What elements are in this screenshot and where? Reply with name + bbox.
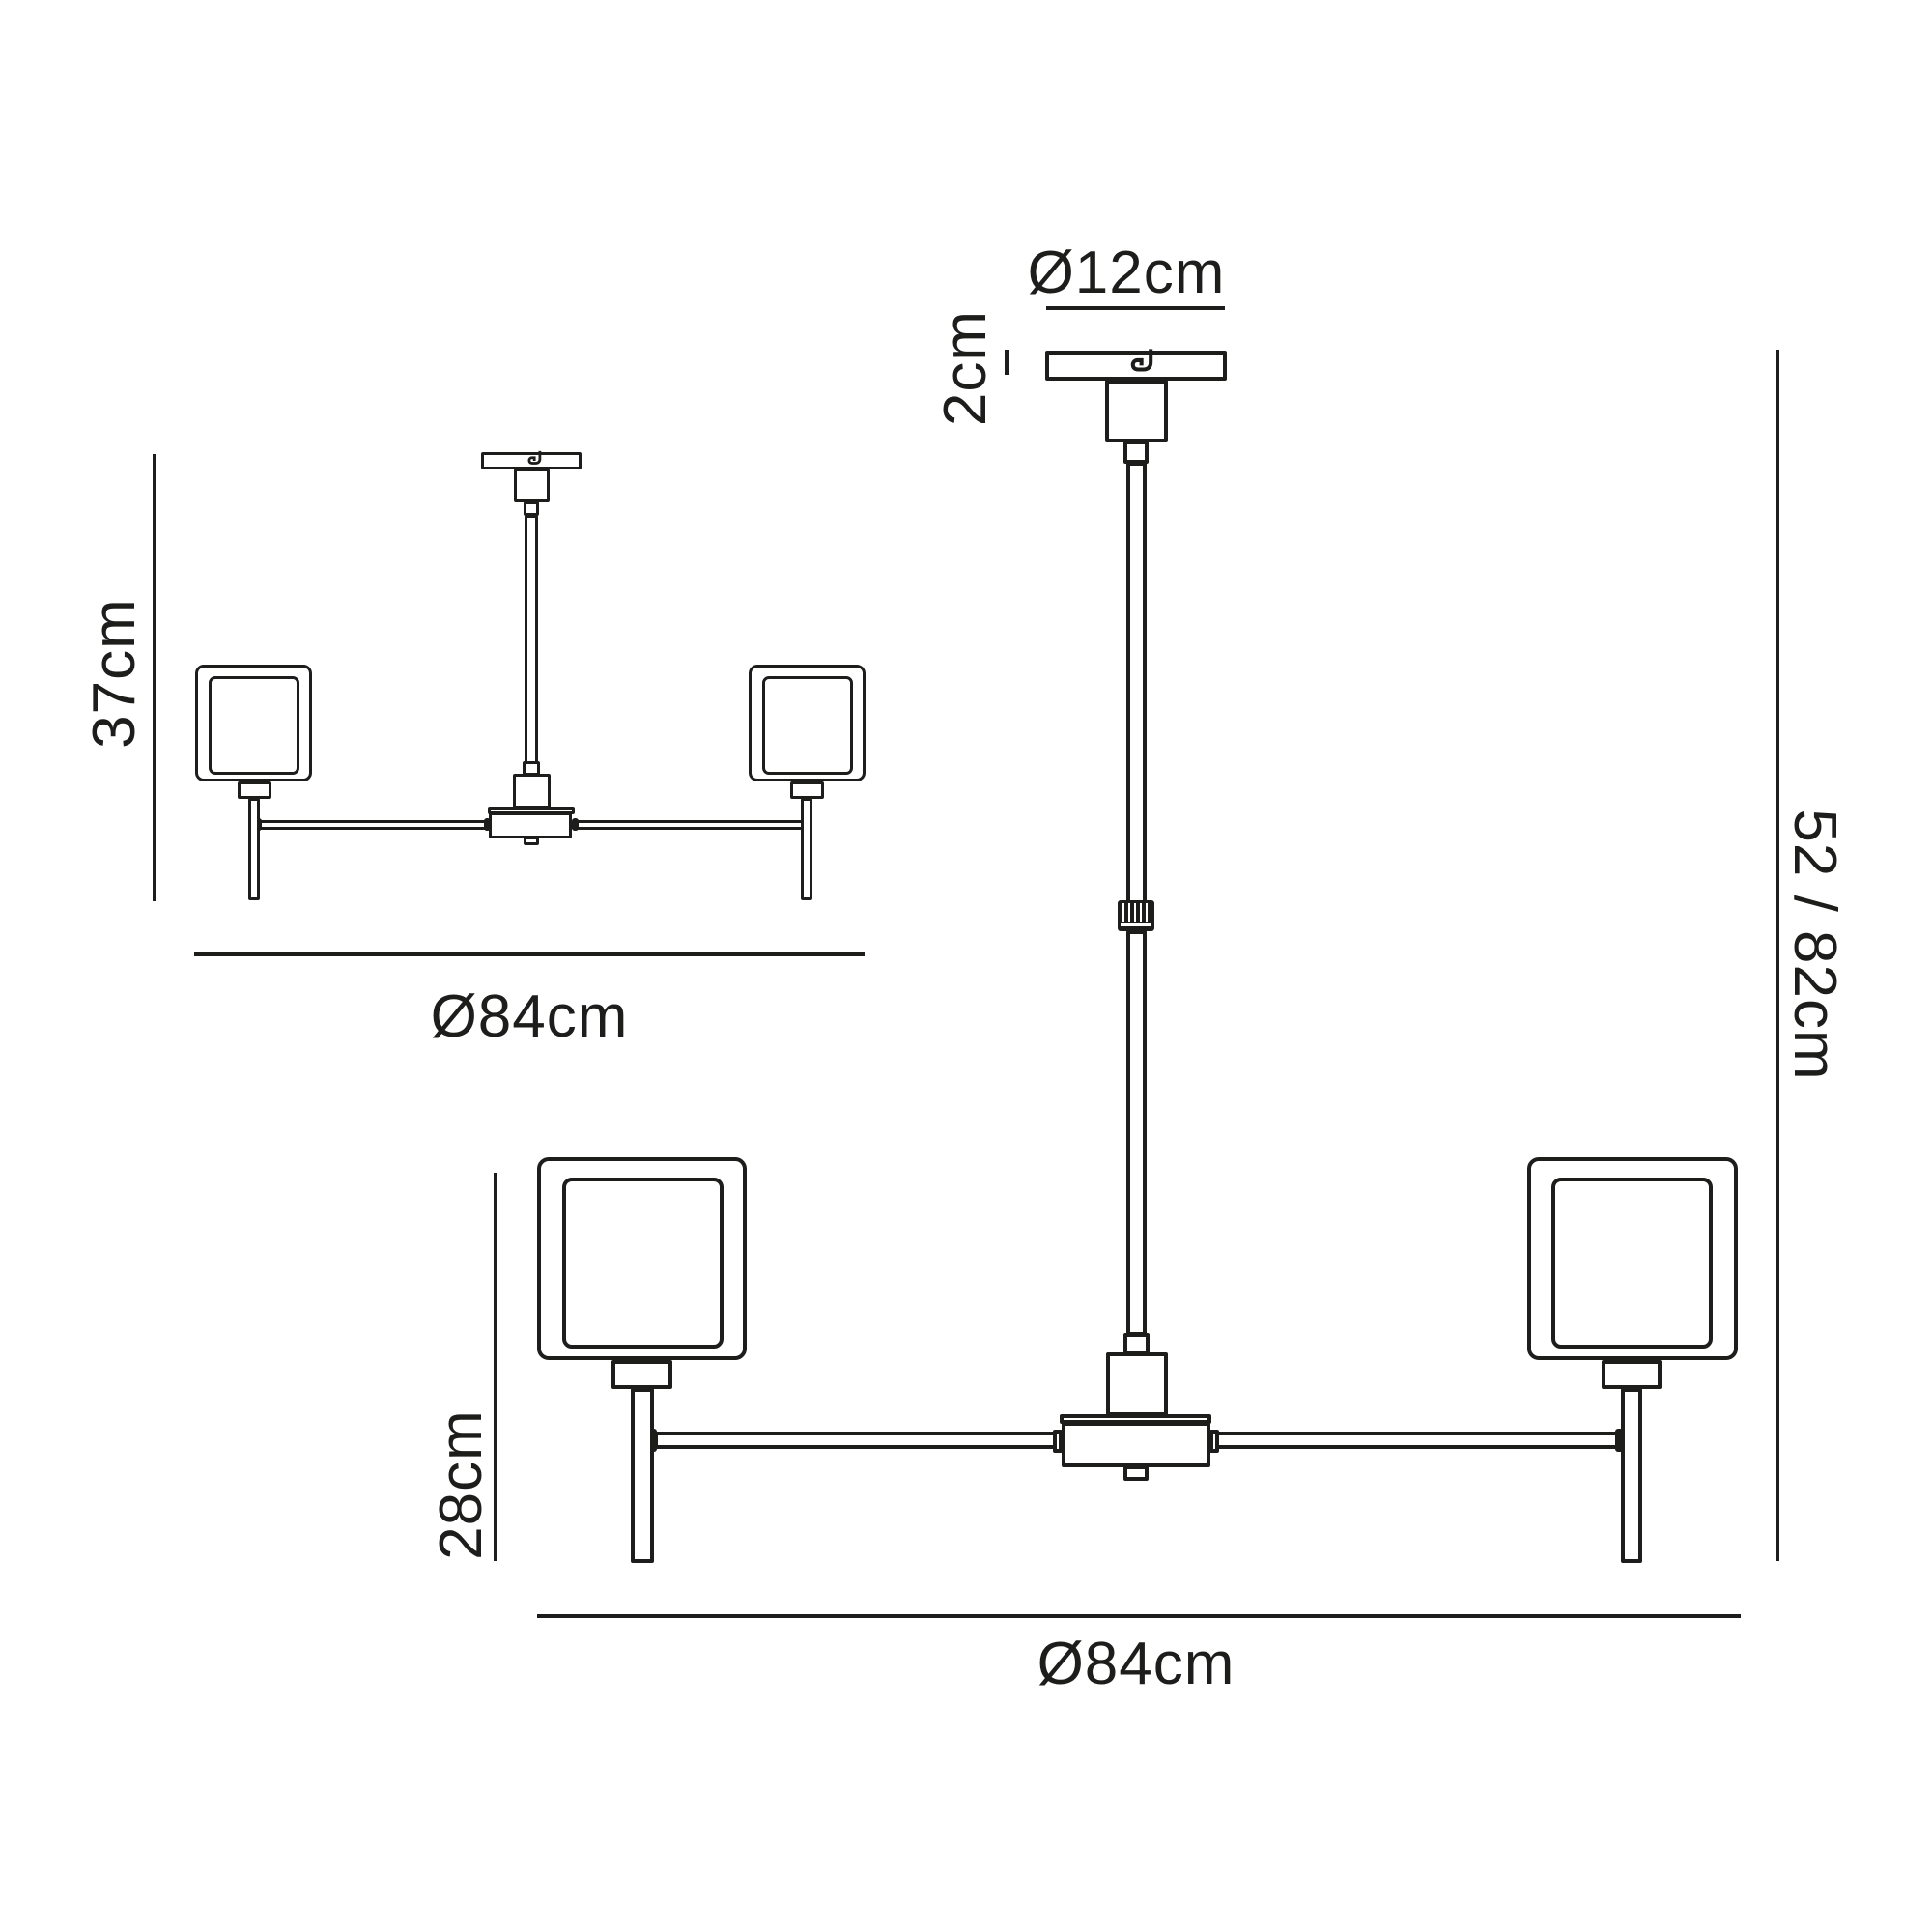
front-view-canopy-diameter-label: Ø12cm [981, 243, 1271, 303]
front-view-canopy-socket [1105, 380, 1168, 442]
front-view-lamp-holder-right [1602, 1360, 1662, 1389]
front-view-canopy-height-tick [1005, 350, 1009, 375]
front-view-drop-dimension-line [1776, 350, 1779, 1561]
height-adjuster-collar [1118, 900, 1154, 931]
side-view-hub-finial [524, 837, 539, 845]
front-view-diameter-dimension-line [537, 1614, 1741, 1618]
front-view-drop-rod-right [1621, 1388, 1642, 1563]
front-view-hub-body [1062, 1422, 1210, 1467]
side-view-hub-body [489, 812, 572, 838]
front-view-drop-rod-left [631, 1388, 654, 1563]
collar-knurling [1122, 903, 1150, 922]
front-view-suspension-rod-lower [1126, 930, 1147, 1336]
side-view-lamp-holder-right [790, 781, 824, 799]
side-view-shade-inner-left [209, 676, 299, 775]
side-view-neck [524, 501, 539, 516]
side-view-diameter-dimension-line [194, 952, 865, 956]
front-view-hub-upper [1106, 1352, 1168, 1416]
front-view-lamp-holder-left [611, 1360, 672, 1389]
side-view-canopy-socket [514, 469, 550, 502]
front-view-shade-inner-left [562, 1178, 724, 1349]
front-view-arm-left [654, 1432, 1058, 1449]
side-view-shade-inner-right [762, 676, 853, 775]
front-view-arm-right [1215, 1432, 1623, 1449]
side-view-hub-upper [513, 774, 551, 809]
front-view-hub-finial [1123, 1465, 1149, 1481]
front-view-hub-endcap-right [1209, 1430, 1219, 1453]
side-view-arm-right [572, 820, 804, 830]
front-view-neck [1123, 440, 1149, 464]
front-view-shade-height-label: 28cm [432, 1369, 492, 1601]
side-view-arm-left [259, 820, 491, 830]
side-view-height-dimension-line [153, 454, 156, 901]
side-view-lamp-holder-left [238, 781, 271, 799]
front-view-drop-height-label: 52 / 82cm [1784, 752, 1844, 1138]
side-view-height-label: 37cm [85, 557, 145, 789]
front-view-shade-inner-right [1551, 1178, 1713, 1349]
front-view-canopy-height-label: 2cm [936, 271, 996, 465]
front-view-diameter-label: Ø84cm [991, 1634, 1281, 1694]
collar-slit [1121, 923, 1151, 926]
side-view-drop-rod-right [801, 798, 812, 900]
side-view-diameter-label: Ø84cm [384, 987, 674, 1047]
dimension-diagram: 37cm Ø84cm [0, 0, 1932, 1932]
side-view-hub-joint-right [572, 818, 579, 831]
front-view-canopy-diameter-line [1046, 306, 1225, 310]
side-view-suspension-rod [525, 515, 538, 764]
hanging-hook-icon [1126, 348, 1159, 377]
side-view-drop-rod-left [248, 798, 260, 900]
mounting-hook-icon [526, 450, 545, 468]
front-view-suspension-rod-upper [1126, 462, 1147, 904]
